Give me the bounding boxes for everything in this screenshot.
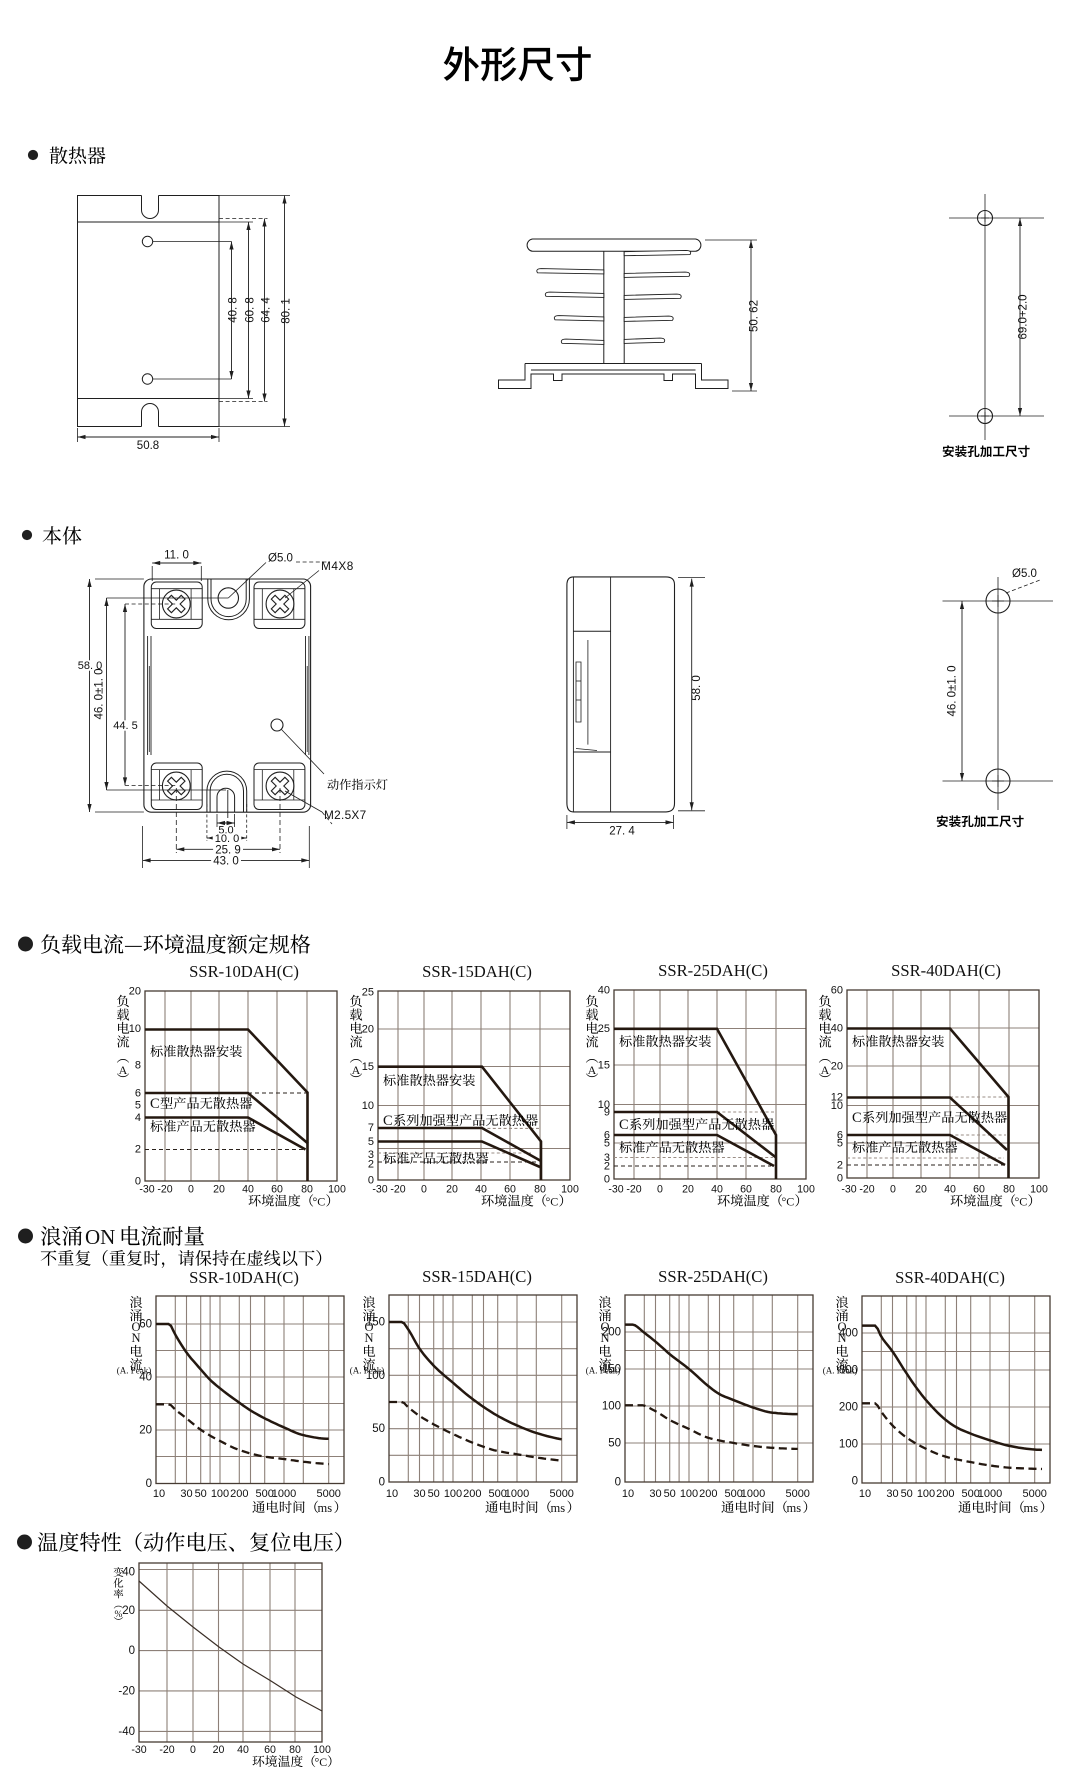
svg-text:60: 60 [740,1184,752,1196]
svg-text:20: 20 [213,1744,225,1756]
svg-text:N: N [364,1331,373,1345]
svg-text:50: 50 [195,1488,207,1500]
svg-text:A: A [821,1063,830,1077]
svg-text:Ø5.0: Ø5.0 [1012,568,1037,580]
svg-text:2: 2 [135,1144,141,1156]
svg-text:20: 20 [362,1024,374,1036]
svg-text:40: 40 [122,1567,135,1579]
svg-text:4: 4 [135,1112,141,1124]
svg-text:SSR-40DAH(C): SSR-40DAH(C) [895,1268,1005,1287]
svg-text:5000: 5000 [785,1488,809,1500]
svg-text:20: 20 [122,1605,135,1617]
svg-text:100: 100 [211,1488,229,1500]
svg-text:20: 20 [682,1184,694,1196]
svg-text:80: 80 [770,1184,782,1196]
svg-text:40: 40 [598,985,610,997]
svg-text:1000: 1000 [272,1488,296,1500]
svg-text:30: 30 [649,1488,661,1500]
svg-text:6: 6 [135,1088,141,1100]
svg-text:1000: 1000 [978,1488,1002,1500]
svg-text:30: 30 [413,1488,425,1500]
svg-text:10: 10 [129,1023,141,1035]
svg-text:100: 100 [839,1439,858,1451]
svg-text:ON: ON [85,1225,115,1249]
svg-text:C: C [150,1096,160,1112]
svg-text:15: 15 [362,1061,374,1073]
svg-text:60: 60 [831,985,843,997]
svg-text:100: 100 [1030,1184,1048,1196]
svg-text:SSR-15DAH(C): SSR-15DAH(C) [422,1267,532,1286]
svg-text:SSR-25DAH(C): SSR-25DAH(C) [658,961,768,980]
svg-text:ms: ms [551,1501,566,1515]
svg-text:100: 100 [561,1184,579,1196]
svg-text:-30: -30 [608,1184,623,1196]
svg-text:20: 20 [446,1184,458,1196]
svg-text:0: 0 [852,1476,858,1488]
svg-text:40: 40 [237,1744,249,1756]
svg-text:40: 40 [139,1372,152,1384]
svg-text:100: 100 [444,1488,462,1500]
svg-text:300: 300 [839,1365,858,1377]
svg-text:50: 50 [372,1423,385,1435]
svg-text:25: 25 [362,987,374,999]
svg-text:50: 50 [608,1438,621,1450]
svg-text:80: 80 [1003,1184,1015,1196]
svg-text:0: 0 [129,1645,135,1657]
svg-text:°C: °C [546,1195,559,1209]
svg-text:100: 100 [797,1184,815,1196]
svg-text:200: 200 [936,1488,954,1500]
svg-text:-20: -20 [859,1184,874,1196]
svg-text:C: C [619,1117,629,1133]
svg-text:5000: 5000 [549,1488,573,1500]
svg-text:50.8: 50.8 [137,440,159,452]
svg-text:200: 200 [699,1488,717,1500]
svg-text:A: A [352,1063,361,1077]
svg-text:50: 50 [901,1488,913,1500]
svg-text:60. 8: 60. 8 [245,297,257,323]
svg-text:0: 0 [190,1744,196,1756]
svg-text:150: 150 [602,1364,621,1376]
svg-text:5: 5 [368,1136,374,1148]
svg-text:46. 0±1. 0: 46. 0±1. 0 [947,665,959,716]
svg-text:58. 0: 58. 0 [691,675,703,701]
svg-text:80: 80 [534,1184,546,1196]
svg-text:2: 2 [604,1161,610,1173]
svg-text:-30: -30 [841,1184,856,1196]
svg-text:C: C [852,1110,862,1126]
svg-text:A: A [588,1063,597,1077]
svg-text:5: 5 [135,1100,141,1112]
svg-text:40: 40 [475,1184,487,1196]
svg-text:ms: ms [318,1501,333,1515]
svg-text:ms: ms [787,1501,802,1515]
svg-text:10: 10 [831,1100,843,1112]
svg-text:60: 60 [264,1744,276,1756]
svg-text:100: 100 [602,1401,621,1413]
svg-text:80. 1: 80. 1 [281,298,293,324]
svg-text:7: 7 [368,1122,374,1134]
svg-text:0: 0 [146,1478,152,1490]
svg-text:-30: -30 [139,1184,154,1196]
svg-text:9: 9 [604,1107,610,1119]
svg-text:10: 10 [386,1488,398,1500]
svg-text:20: 20 [915,1184,927,1196]
svg-text:SSR-10DAH(C): SSR-10DAH(C) [189,1268,299,1287]
svg-text:SSR-10DAH(C): SSR-10DAH(C) [189,962,299,981]
svg-text:0: 0 [890,1184,896,1196]
svg-text:°C: °C [313,1195,326,1209]
svg-text:-20: -20 [626,1184,641,1196]
svg-text:0: 0 [421,1184,427,1196]
svg-text:200: 200 [839,1402,858,1414]
svg-text:27. 4: 27. 4 [609,826,635,838]
svg-text:100: 100 [366,1370,385,1382]
svg-text:40: 40 [711,1184,723,1196]
svg-text:ms: ms [1024,1501,1039,1515]
svg-text:40: 40 [944,1184,956,1196]
svg-text:20: 20 [129,986,141,998]
svg-text:11. 0: 11. 0 [164,550,189,562]
svg-text:5: 5 [604,1138,610,1150]
svg-text:100: 100 [680,1488,698,1500]
svg-text:200: 200 [463,1488,481,1500]
svg-text:10: 10 [622,1488,634,1500]
svg-text:C: C [383,1113,393,1129]
svg-text:50: 50 [664,1488,676,1500]
svg-text:20: 20 [831,1061,843,1073]
svg-text:150: 150 [366,1317,385,1329]
svg-text:8: 8 [135,1060,141,1072]
svg-text:-20: -20 [159,1744,174,1756]
svg-text:64. 4: 64. 4 [261,297,273,323]
svg-text:20: 20 [213,1184,225,1196]
svg-text:-20: -20 [390,1184,405,1196]
svg-text:°C: °C [315,1755,328,1769]
svg-text:50: 50 [428,1488,440,1500]
svg-text:40. 8: 40. 8 [228,297,240,323]
svg-text:-20: -20 [118,1686,135,1698]
svg-text:80: 80 [301,1184,313,1196]
svg-text:5: 5 [837,1138,843,1150]
svg-text:46. 0±1. 0: 46. 0±1. 0 [94,668,106,719]
svg-text:80: 80 [289,1744,301,1756]
svg-text:200: 200 [602,1327,621,1339]
svg-text:43. 0: 43. 0 [213,856,239,868]
svg-text:0: 0 [615,1477,621,1489]
svg-text:SSR-25DAH(C): SSR-25DAH(C) [658,1267,768,1286]
svg-text:100: 100 [917,1488,935,1500]
svg-text:SSR-15DAH(C): SSR-15DAH(C) [422,962,532,981]
svg-text:400: 400 [839,1328,858,1340]
svg-text:M4X8: M4X8 [321,559,354,573]
svg-text:SSR-40DAH(C): SSR-40DAH(C) [891,961,1001,980]
svg-text:1000: 1000 [741,1488,765,1500]
svg-text:20: 20 [139,1425,152,1437]
svg-text:60: 60 [973,1184,985,1196]
svg-text:40: 40 [831,1023,843,1035]
svg-text:Ø5.0: Ø5.0 [268,553,293,565]
svg-text:M2.5X7: M2.5X7 [324,808,366,822]
svg-text:10: 10 [859,1488,871,1500]
svg-text:10. 0: 10. 0 [215,833,239,845]
svg-text:0: 0 [188,1184,194,1196]
svg-text:-30: -30 [372,1184,387,1196]
svg-text:2: 2 [368,1159,374,1171]
svg-text:-40: -40 [118,1726,135,1738]
svg-text:1000: 1000 [505,1488,529,1500]
svg-text:A: A [119,1063,128,1077]
svg-text:0: 0 [657,1184,663,1196]
svg-text:30: 30 [180,1488,192,1500]
svg-text:25: 25 [598,1023,610,1035]
svg-text:°C: °C [1015,1195,1028,1209]
svg-text:100: 100 [328,1184,346,1196]
svg-text:2: 2 [837,1160,843,1172]
svg-text:60: 60 [271,1184,283,1196]
svg-text:50. 62: 50. 62 [749,300,761,332]
svg-text:10: 10 [362,1100,374,1112]
svg-text:-20: -20 [157,1184,172,1196]
svg-text:60: 60 [139,1319,152,1331]
svg-text:15: 15 [598,1060,610,1072]
svg-text:69.0+2.0: 69.0+2.0 [1018,294,1030,339]
svg-text:200: 200 [230,1488,248,1500]
svg-text:10: 10 [153,1488,165,1500]
svg-text:-30: -30 [131,1744,146,1756]
svg-text:N: N [131,1331,140,1345]
svg-text:5000: 5000 [1022,1488,1046,1500]
svg-text:40: 40 [242,1184,254,1196]
svg-text:60: 60 [504,1184,516,1196]
svg-text:°C: °C [782,1195,795,1209]
svg-text:44. 5: 44. 5 [113,720,137,732]
svg-text:30: 30 [886,1488,898,1500]
svg-text:0: 0 [379,1477,385,1489]
svg-text:5000: 5000 [316,1488,340,1500]
